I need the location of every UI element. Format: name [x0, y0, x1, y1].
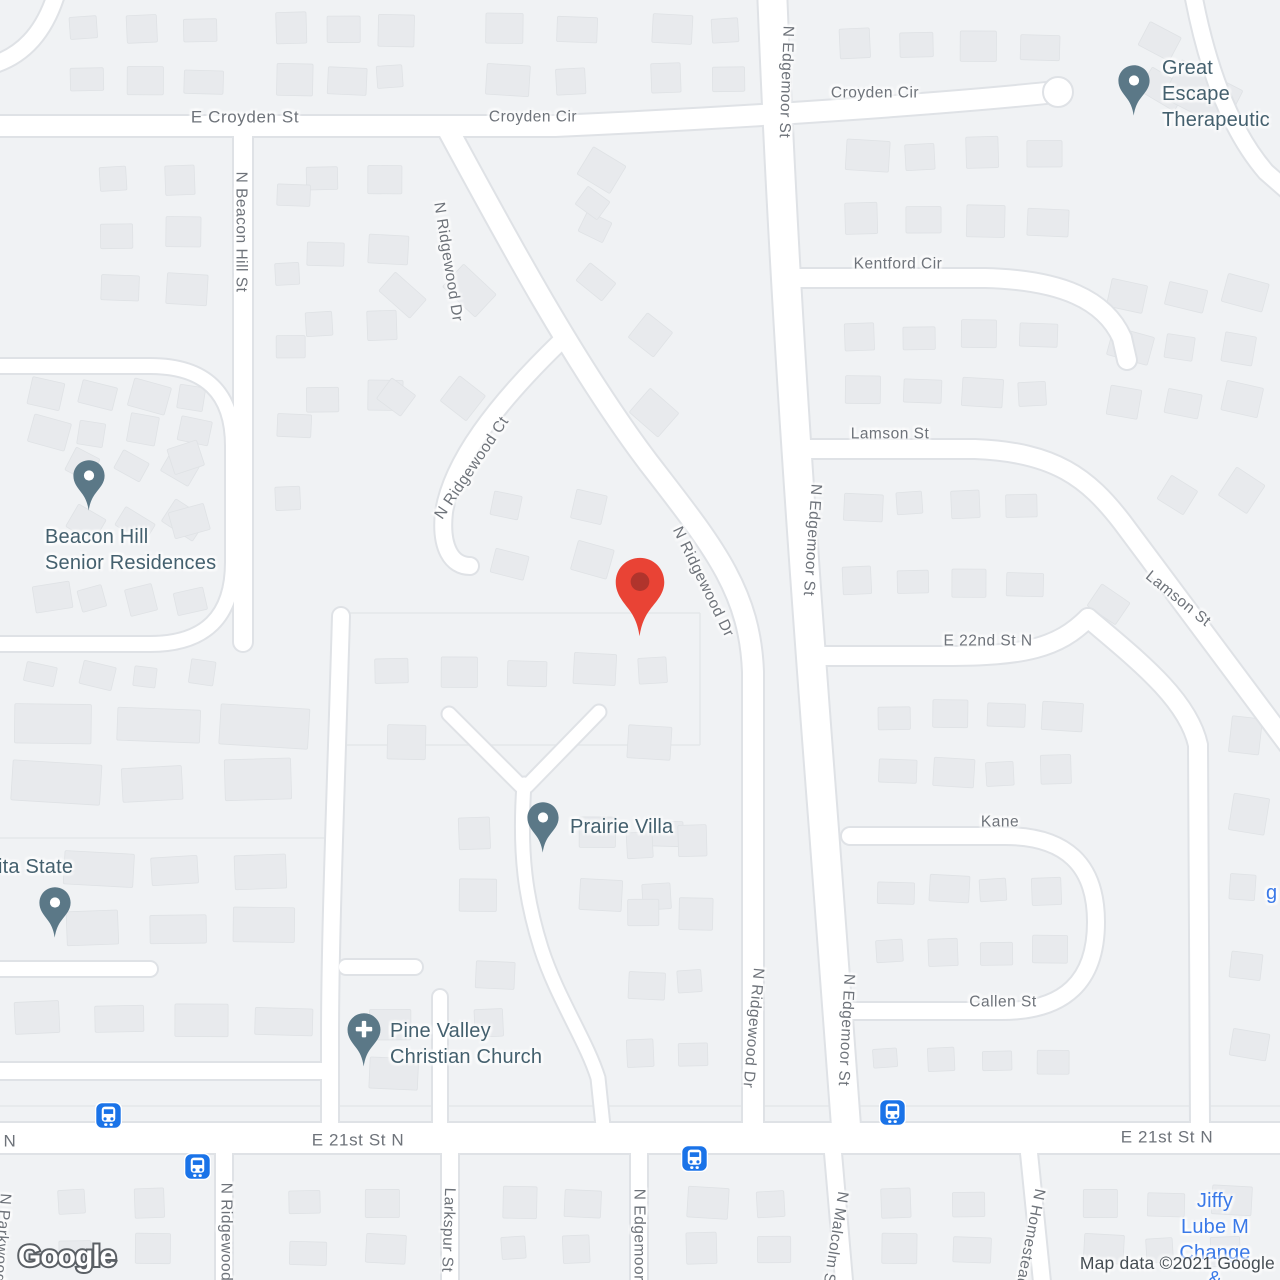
map-canvas[interactable]: E Croyden StCroyden CirCroyden CirN Beac… [0, 0, 1280, 1280]
poi-pin-beacon-hill-senior-residences[interactable] [70, 459, 108, 518]
building-footprint [486, 13, 524, 44]
building-footprint [114, 450, 150, 483]
building-footprint [69, 16, 98, 40]
building-footprint [327, 67, 367, 96]
building-footprint [14, 704, 91, 744]
building-footprint [100, 224, 132, 249]
building-footprint [121, 766, 183, 803]
destination-pin-icon[interactable] [612, 556, 668, 645]
transit-stop-icon[interactable] [184, 1153, 211, 1180]
building-footprint [224, 758, 291, 801]
building-footprint [845, 202, 878, 234]
building-footprint [1229, 1028, 1270, 1061]
building-footprint [570, 540, 614, 579]
building-footprint [306, 387, 338, 412]
building-footprint [77, 420, 106, 448]
building-footprint [1083, 1189, 1117, 1217]
building-footprint [165, 165, 195, 195]
building-footprint [952, 1192, 984, 1217]
building-footprint [175, 1004, 228, 1037]
building-footprint [27, 414, 71, 451]
building-footprint [305, 311, 333, 336]
building-footprint [638, 657, 668, 684]
building-footprint [485, 63, 530, 96]
building-footprint [627, 725, 672, 761]
building-footprint [440, 376, 486, 421]
building-footprint [1221, 332, 1257, 366]
building-footprint [678, 1043, 708, 1066]
building-footprint [475, 961, 515, 990]
cross-icon [356, 1027, 372, 1031]
building-footprint [758, 1236, 791, 1263]
building-footprint [101, 275, 140, 302]
building-footprint [490, 548, 529, 580]
building-footprint [839, 28, 871, 59]
building-footprint [952, 569, 986, 597]
building-footprint [985, 761, 1014, 786]
building-footprint [150, 915, 207, 944]
building-footprint [184, 70, 224, 94]
building-footprint [882, 1233, 917, 1264]
building-footprint [233, 907, 295, 942]
building-footprint [277, 184, 311, 206]
building-footprint [276, 12, 307, 44]
poi-label-ita-state[interactable]: ita State [0, 854, 73, 880]
building-footprint [1221, 273, 1269, 312]
building-footprint [966, 205, 1005, 238]
building-footprint [686, 1232, 717, 1264]
google-logo[interactable]: Google [12, 1236, 162, 1280]
building-footprint [78, 380, 118, 411]
building-footprint [982, 1051, 1012, 1071]
building-footprint [133, 666, 158, 688]
building-footprint [929, 874, 970, 903]
building-footprint [1020, 35, 1060, 61]
building-footprint [562, 1235, 590, 1264]
building-footprint [58, 1189, 86, 1214]
building-footprint [134, 1188, 164, 1218]
building-footprint [289, 1190, 321, 1213]
building-footprint [275, 486, 301, 511]
building-footprint [557, 16, 598, 43]
building-footprint [1041, 701, 1083, 732]
building-footprint [626, 1039, 654, 1068]
building-footprint [928, 938, 958, 966]
building-footprint [987, 703, 1026, 728]
building-footprint [651, 63, 681, 93]
building-footprint [1037, 1050, 1069, 1074]
building-footprint [678, 825, 707, 857]
building-footprint [387, 725, 426, 760]
building-footprint [980, 942, 1012, 965]
building-footprint [1006, 494, 1038, 517]
poi-label-pine-valley-christian-church[interactable]: Pine Valley Christian Church [390, 1018, 542, 1070]
building-footprint [1018, 381, 1047, 406]
building-footprint [712, 67, 744, 92]
building-footprint [896, 491, 923, 515]
building-footprint [577, 147, 626, 194]
building-footprint [79, 660, 117, 691]
building-footprint [289, 1241, 327, 1265]
building-footprint [628, 313, 673, 358]
building-footprint [881, 1188, 911, 1218]
poi-label-beacon-hill-senior-residences[interactable]: Beacon Hill Senior Residences [45, 524, 216, 576]
building-footprint [842, 566, 872, 595]
building-footprint [872, 1048, 897, 1068]
building-footprint [1229, 951, 1263, 981]
building-footprint [503, 1186, 537, 1219]
building-footprint [628, 899, 659, 926]
google-logo-text: Google [18, 1240, 116, 1273]
building-footprint [507, 661, 547, 687]
building-footprint [1027, 208, 1069, 237]
building-footprint [307, 242, 345, 266]
building-footprint [188, 659, 216, 686]
building-footprint [1164, 334, 1195, 362]
building-footprint [365, 1233, 406, 1264]
building-footprint [652, 14, 693, 45]
building-footprint [1228, 793, 1269, 835]
transit-stop-icon[interactable] [681, 1145, 708, 1172]
building-footprint [1164, 388, 1202, 419]
building-footprint [276, 63, 313, 96]
building-footprint [77, 584, 107, 612]
building-footprint [906, 207, 941, 234]
building-footprint [628, 971, 666, 1000]
building-footprint [327, 16, 360, 43]
poi-pin-ita-state[interactable] [36, 886, 74, 945]
building-footprint [555, 68, 586, 95]
poi-pin-great-escape-therapeutic[interactable] [1115, 64, 1153, 123]
building-footprint [1031, 877, 1061, 905]
map-attribution: Map data ©2021 Google [1080, 1253, 1275, 1274]
building-footprint [927, 1047, 955, 1072]
cul-de-sac [1043, 77, 1073, 107]
building-footprint [900, 32, 934, 57]
building-footprint [32, 581, 73, 613]
building-footprint [166, 216, 201, 247]
building-footprint [490, 491, 522, 520]
building-footprint [126, 14, 157, 43]
building-footprint [127, 378, 171, 415]
building-footprint [441, 657, 477, 688]
building-footprint [933, 700, 968, 728]
building-footprint [933, 757, 975, 788]
building-footprint [1229, 873, 1256, 900]
building-footprint [564, 1189, 602, 1218]
building-footprint [365, 1189, 399, 1217]
building-footprint [368, 166, 402, 194]
building-footprint [677, 969, 702, 993]
building-footprint [961, 377, 1003, 408]
building-footprint [459, 879, 497, 912]
building-footprint [234, 854, 287, 890]
building-footprint [876, 939, 904, 963]
building-footprint [953, 1237, 992, 1264]
building-footprint [219, 704, 310, 749]
building-footprint [1221, 380, 1264, 418]
building-footprint [99, 166, 127, 191]
building-footprint [1218, 467, 1265, 514]
building-footprint [905, 143, 936, 170]
building-footprint [376, 65, 403, 89]
building-footprint [966, 136, 999, 168]
building-footprint [687, 1186, 729, 1219]
building-footprint [951, 490, 981, 519]
building-footprint [570, 489, 607, 525]
building-footprint [378, 14, 415, 47]
building-footprint [711, 18, 739, 43]
building-footprint [173, 587, 207, 616]
building-footprint [1164, 281, 1208, 313]
building-footprint [878, 759, 917, 784]
building-footprint [70, 68, 104, 91]
building-footprint [375, 658, 409, 683]
building-footprint [576, 263, 616, 301]
transit-stop-icon[interactable] [95, 1102, 122, 1129]
transit-stop-icon[interactable] [879, 1099, 906, 1126]
building-footprint [979, 878, 1007, 902]
building-footprint [1032, 935, 1067, 963]
building-footprint [844, 323, 874, 351]
building-footprint [845, 139, 890, 172]
building-footprint [1027, 141, 1062, 168]
building-footprint [11, 760, 102, 805]
building-footprint [1019, 323, 1058, 348]
building-footprint [1106, 385, 1142, 419]
building-footprint [843, 493, 883, 522]
building-footprint [166, 273, 208, 306]
building-footprint [845, 376, 880, 404]
building-footprint [877, 882, 914, 905]
building-footprint [878, 707, 910, 730]
poi-pin-prairie-villa[interactable] [524, 801, 562, 860]
poi-label-partial-business-label[interactable]: g [1266, 880, 1277, 906]
building-footprint [126, 413, 159, 447]
poi-pin-pine-valley-christian-church[interactable] [344, 1012, 384, 1074]
building-footprint [14, 1001, 60, 1035]
building-footprint [903, 327, 935, 350]
building-footprint [117, 707, 201, 743]
building-footprint [756, 1191, 785, 1218]
building-footprint [151, 855, 199, 885]
building-footprint [458, 817, 490, 850]
building-footprint [63, 851, 134, 888]
building-footprint [960, 31, 996, 62]
poi-label-prairie-villa[interactable]: Prairie Villa [570, 814, 673, 840]
building-footprint [501, 1236, 526, 1260]
building-footprint [961, 320, 996, 348]
building-footprint [573, 652, 617, 685]
building-footprint [95, 1005, 144, 1032]
building-footprint [127, 67, 163, 95]
building-footprint [897, 570, 929, 593]
building-footprint [255, 1007, 313, 1035]
building-footprint [903, 379, 942, 404]
building-footprint [1157, 475, 1198, 515]
building-footprint [679, 898, 713, 931]
poi-label-great-escape-therapeutic[interactable]: Great Escape Therapeutic [1162, 55, 1280, 133]
building-footprint [276, 336, 305, 358]
building-footprint [275, 262, 300, 285]
building-footprint [183, 19, 217, 42]
building-footprint [23, 661, 57, 686]
building-footprint [579, 878, 623, 911]
building-footprint [124, 583, 157, 616]
building-footprint [368, 234, 409, 265]
building-footprint [1040, 754, 1071, 784]
building-footprint [27, 377, 65, 411]
building-footprint [367, 310, 397, 340]
building-footprint [277, 413, 312, 437]
building-footprint [442, 264, 496, 317]
building-footprint [1006, 572, 1044, 596]
